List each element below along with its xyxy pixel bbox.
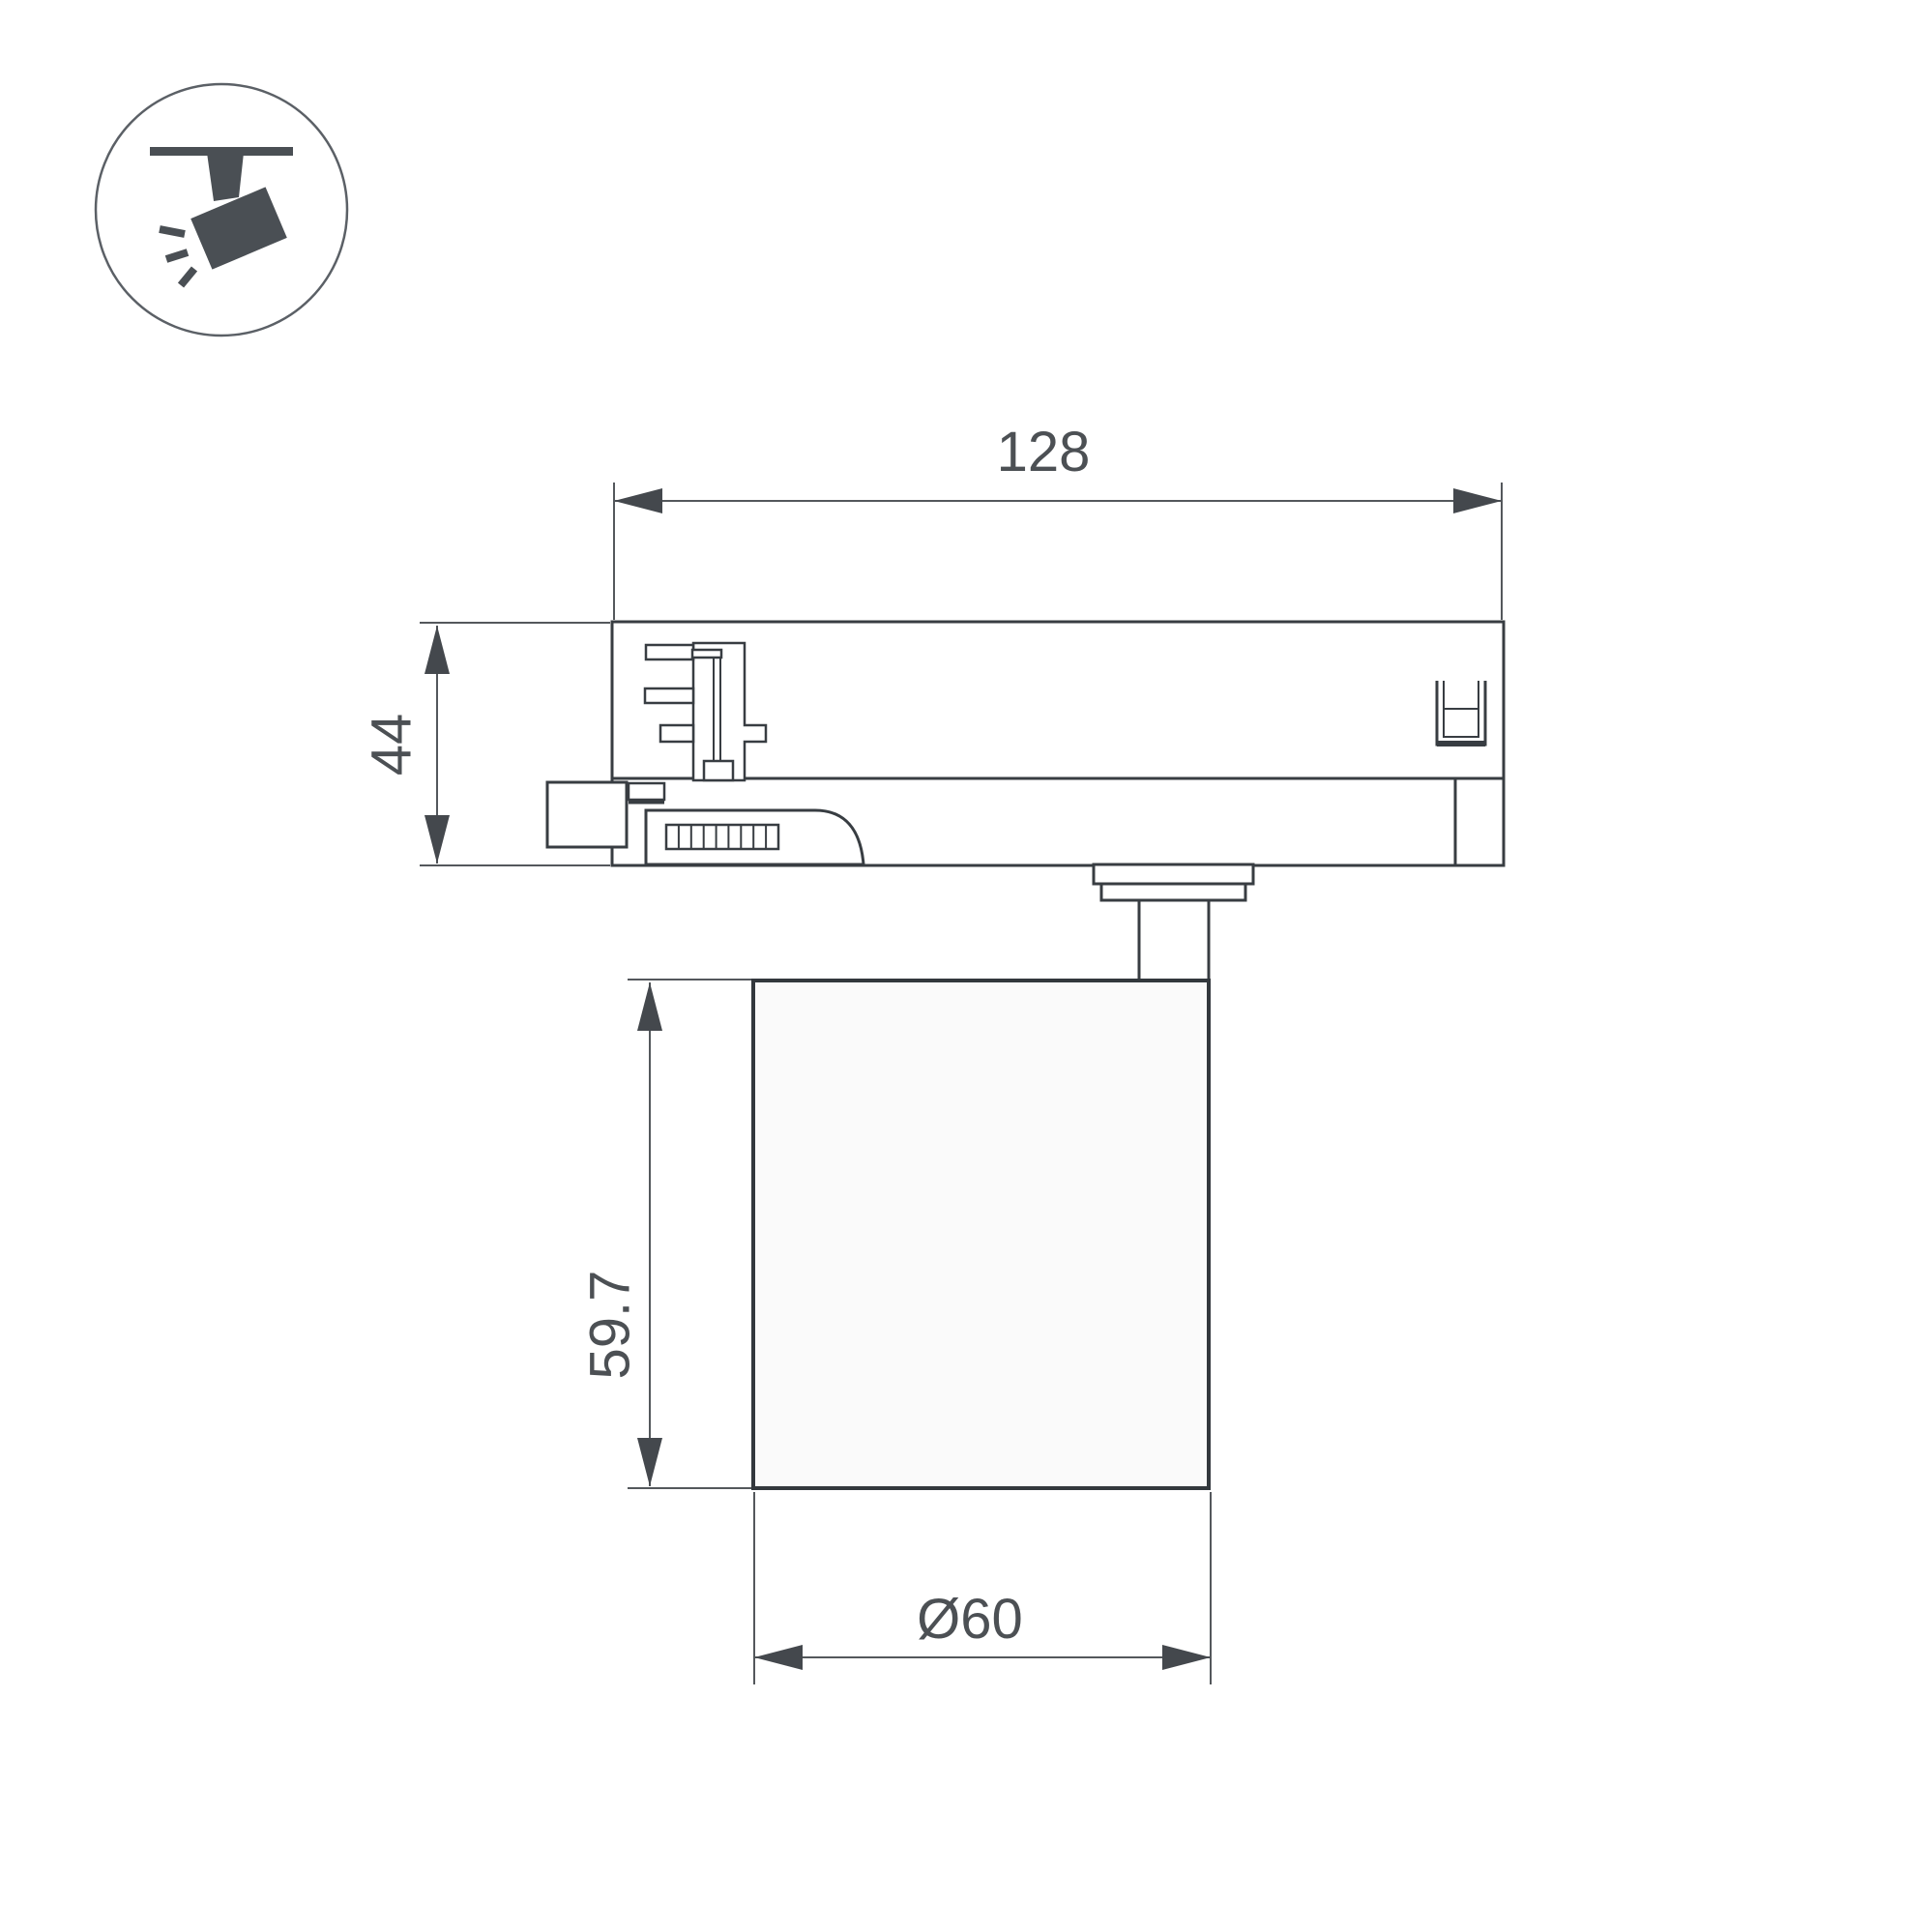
mount-neck — [1139, 900, 1209, 981]
dimension-body-diameter: Ø60 — [754, 1492, 1211, 1684]
dimension-label-128: 128 — [997, 421, 1091, 483]
track-spotlight-icon — [96, 84, 347, 336]
dimension-label-d60: Ø60 — [917, 1588, 1023, 1651]
release-lever — [646, 810, 864, 864]
arrow-up — [637, 982, 662, 1031]
arrow-down — [424, 815, 450, 864]
arrow-right — [1453, 488, 1502, 513]
icon-light-ray — [160, 229, 185, 234]
technical-drawing: 128 44 — [0, 0, 1932, 1932]
arrow-up — [424, 626, 450, 674]
mount-joint — [1094, 864, 1253, 981]
mount-flange-lower — [1101, 884, 1245, 900]
lamp-body — [753, 981, 1209, 1488]
arrow-down — [637, 1438, 662, 1486]
lock-knob — [547, 782, 627, 847]
dimension-body-height: 59.7 — [578, 980, 751, 1488]
adapter-upper-housing — [612, 622, 1504, 778]
latch-block — [629, 783, 664, 802]
dimension-label-59-7: 59.7 — [578, 1271, 641, 1380]
lever-grip — [666, 825, 778, 849]
dimension-adapter-width: 128 — [614, 421, 1502, 620]
arrow-left — [754, 1645, 803, 1670]
arrow-right — [1162, 1645, 1211, 1670]
dimension-label-44: 44 — [360, 714, 423, 776]
track-adapter — [547, 622, 1504, 865]
arrow-left — [614, 488, 662, 513]
mount-flange-upper — [1094, 864, 1253, 884]
technical-drawing-page: 128 44 — [0, 0, 1932, 1932]
